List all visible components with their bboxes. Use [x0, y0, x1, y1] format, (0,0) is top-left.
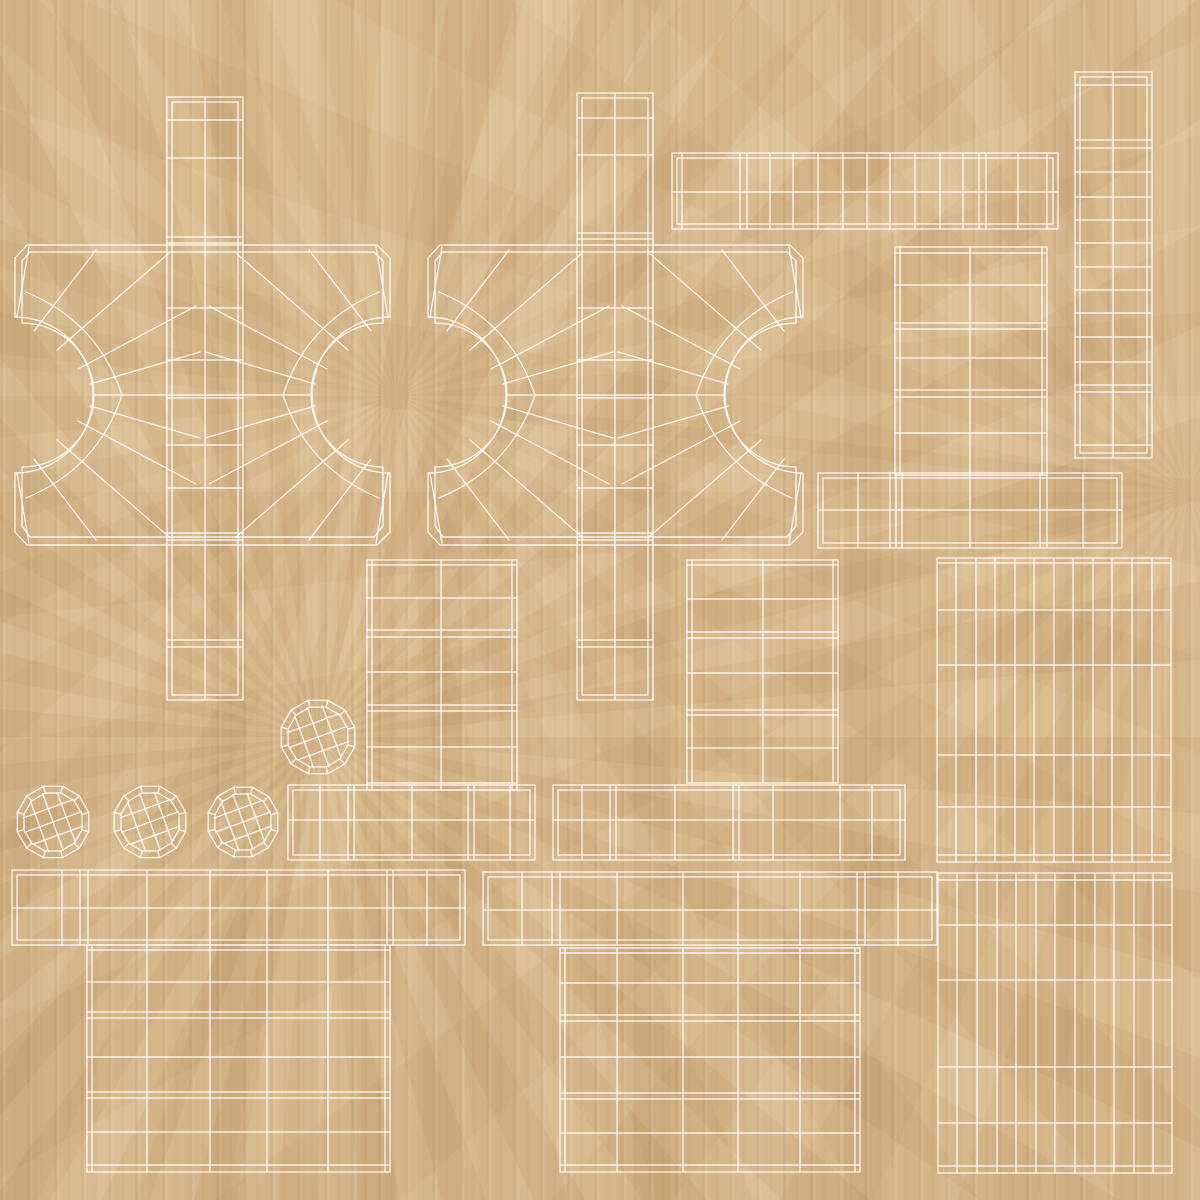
uv-rect-mid-left — [367, 560, 517, 790]
uv-sphere-disc-2 — [17, 786, 88, 857]
uv-plate-left — [15, 245, 390, 545]
uv-rect-mid-right — [687, 560, 838, 783]
uv-grid-bottom-right — [938, 873, 1172, 1173]
uv-grid-right-upper — [937, 558, 1171, 862]
uv-bar-bottom-middle — [483, 872, 937, 945]
uv-rect-right-upper — [895, 247, 1047, 475]
uv-sphere-disc-1 — [281, 700, 354, 773]
uv-wireframe-layer — [0, 0, 1200, 1200]
uv-sphere-disc-4 — [208, 787, 278, 857]
uv-bar-mid-left — [288, 785, 535, 860]
uv-strip-right-tall — [1075, 72, 1152, 458]
uv-strip-top-right — [672, 153, 1058, 229]
uv-sphere-disc-3 — [114, 786, 185, 857]
uv-bar-bottom-left — [12, 870, 465, 945]
uv-strip-right-lower — [818, 473, 1122, 548]
uv-rect-bottom-middle — [560, 948, 860, 1172]
uv-bar-mid-right — [553, 785, 905, 860]
uv-strip-vertical-left — [167, 97, 243, 700]
uv-strip-vertical-center — [577, 93, 653, 700]
uv-rect-bottom-left — [87, 945, 390, 1172]
uv-texture-atlas — [0, 0, 1200, 1200]
